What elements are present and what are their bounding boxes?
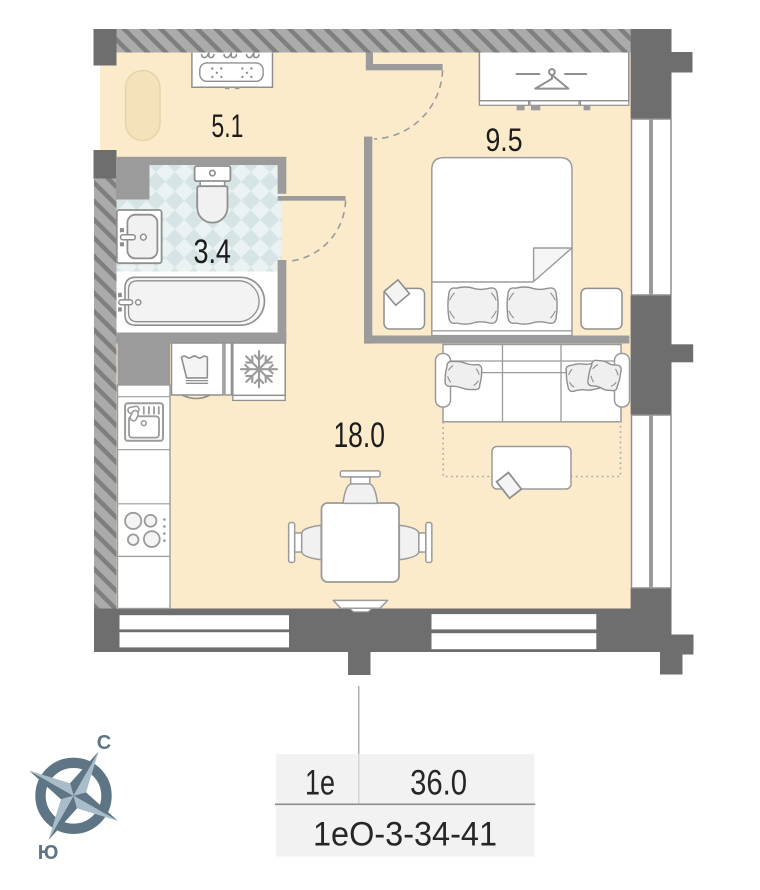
svg-text:3.4: 3.4 — [193, 233, 231, 271]
svg-text:С: С — [97, 732, 111, 754]
svg-text:1е: 1е — [305, 764, 335, 803]
svg-text:36.0: 36.0 — [410, 764, 467, 803]
svg-text:18.0: 18.0 — [333, 416, 385, 455]
svg-text:5.1: 5.1 — [211, 108, 243, 144]
svg-text:1еО-3-34-41: 1еО-3-34-41 — [313, 816, 497, 854]
svg-text:9.5: 9.5 — [486, 122, 523, 158]
svg-text:Ю: Ю — [38, 842, 59, 864]
